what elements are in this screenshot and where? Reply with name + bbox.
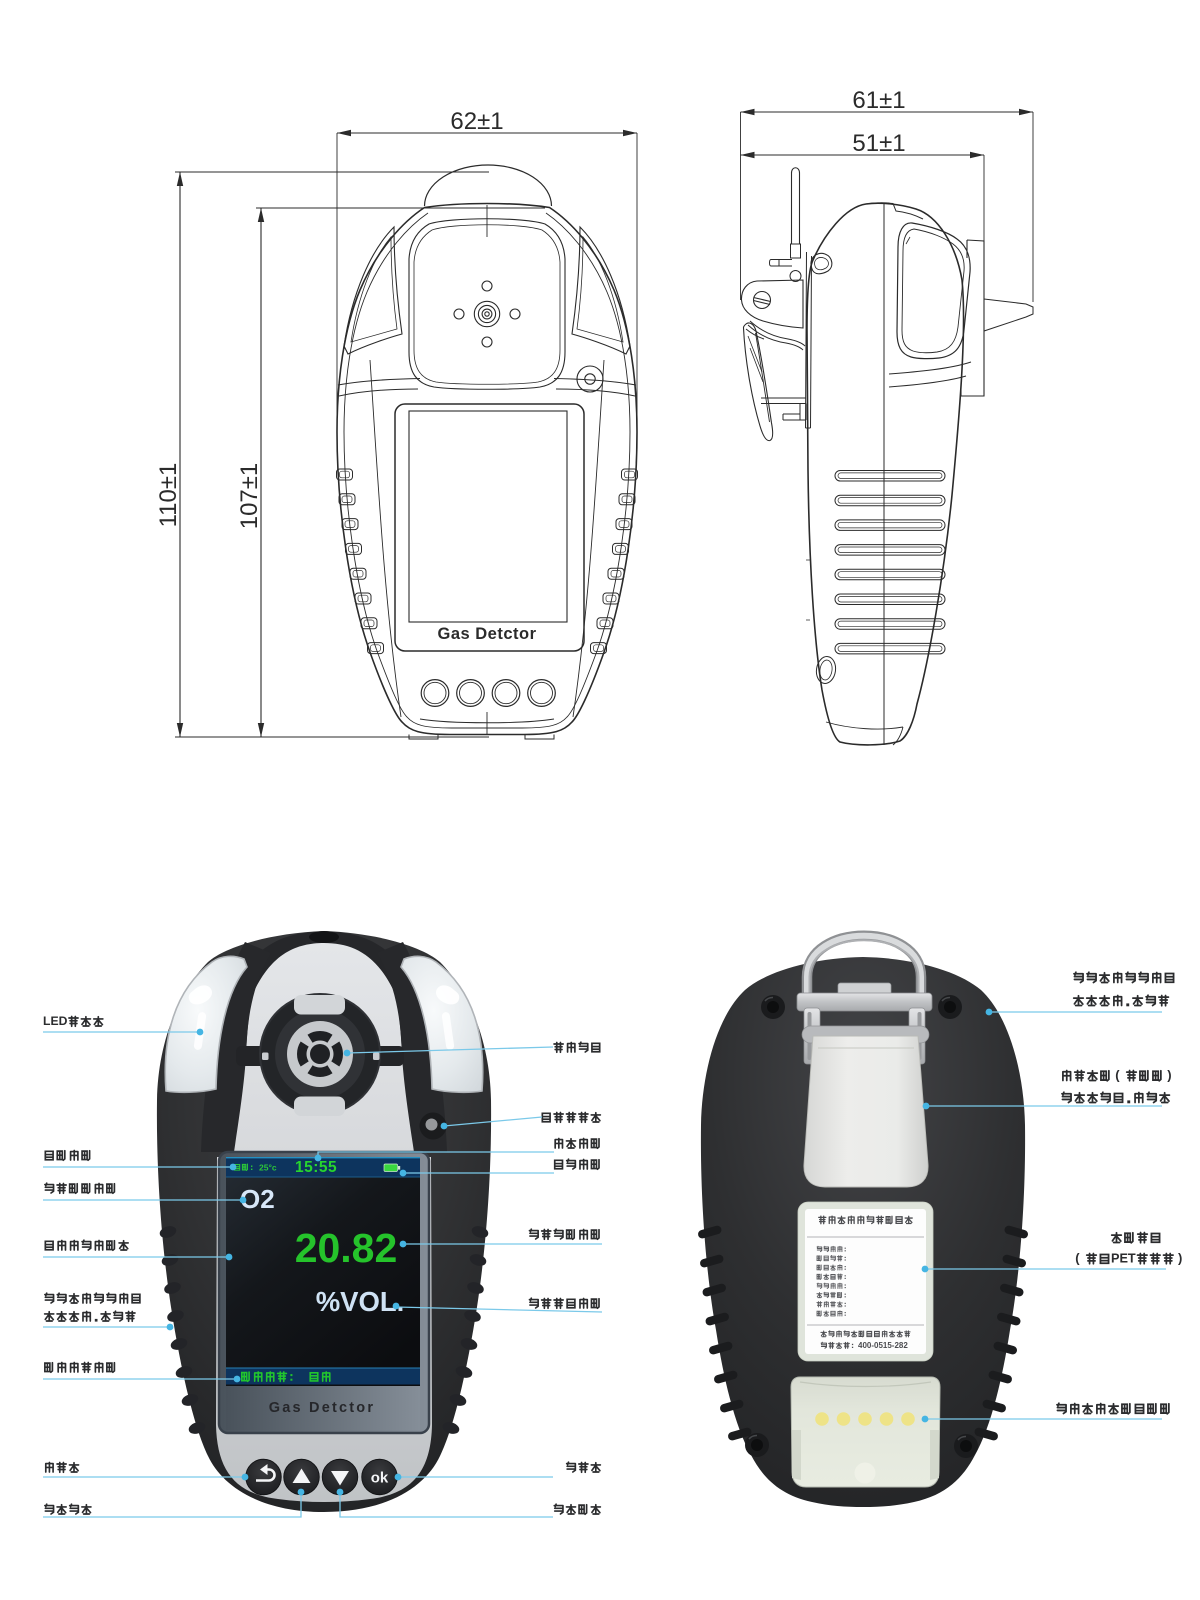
svg-text:62±1: 62±1 [450,108,503,135]
svg-text:61±1: 61±1 [852,87,905,114]
svg-text:107±1: 107±1 [236,463,263,530]
svg-text:Gas Detctor: Gas Detctor [437,625,536,643]
svg-text:20.82: 20.82 [295,1225,398,1271]
svg-text:(: ( [1115,1068,1120,1083]
svg-text:51±1: 51±1 [852,130,905,157]
svg-text:%VOL.: %VOL. [316,1286,405,1317]
svg-text:): ) [1167,1068,1171,1083]
svg-text:Gas Detctor: Gas Detctor [269,1400,375,1416]
svg-text:400-0515-282: 400-0515-282 [858,1341,908,1350]
svg-text:(: ( [1075,1251,1080,1266]
svg-text:25°c: 25°c [259,1163,277,1173]
svg-text:LED: LED [43,1014,68,1028]
svg-text:PET: PET [1111,1252,1136,1266]
svg-text:15:55: 15:55 [295,1159,337,1176]
svg-text:): ) [1178,1251,1182,1266]
svg-text:110±1: 110±1 [155,463,182,528]
svg-text:ok: ok [371,1470,389,1487]
